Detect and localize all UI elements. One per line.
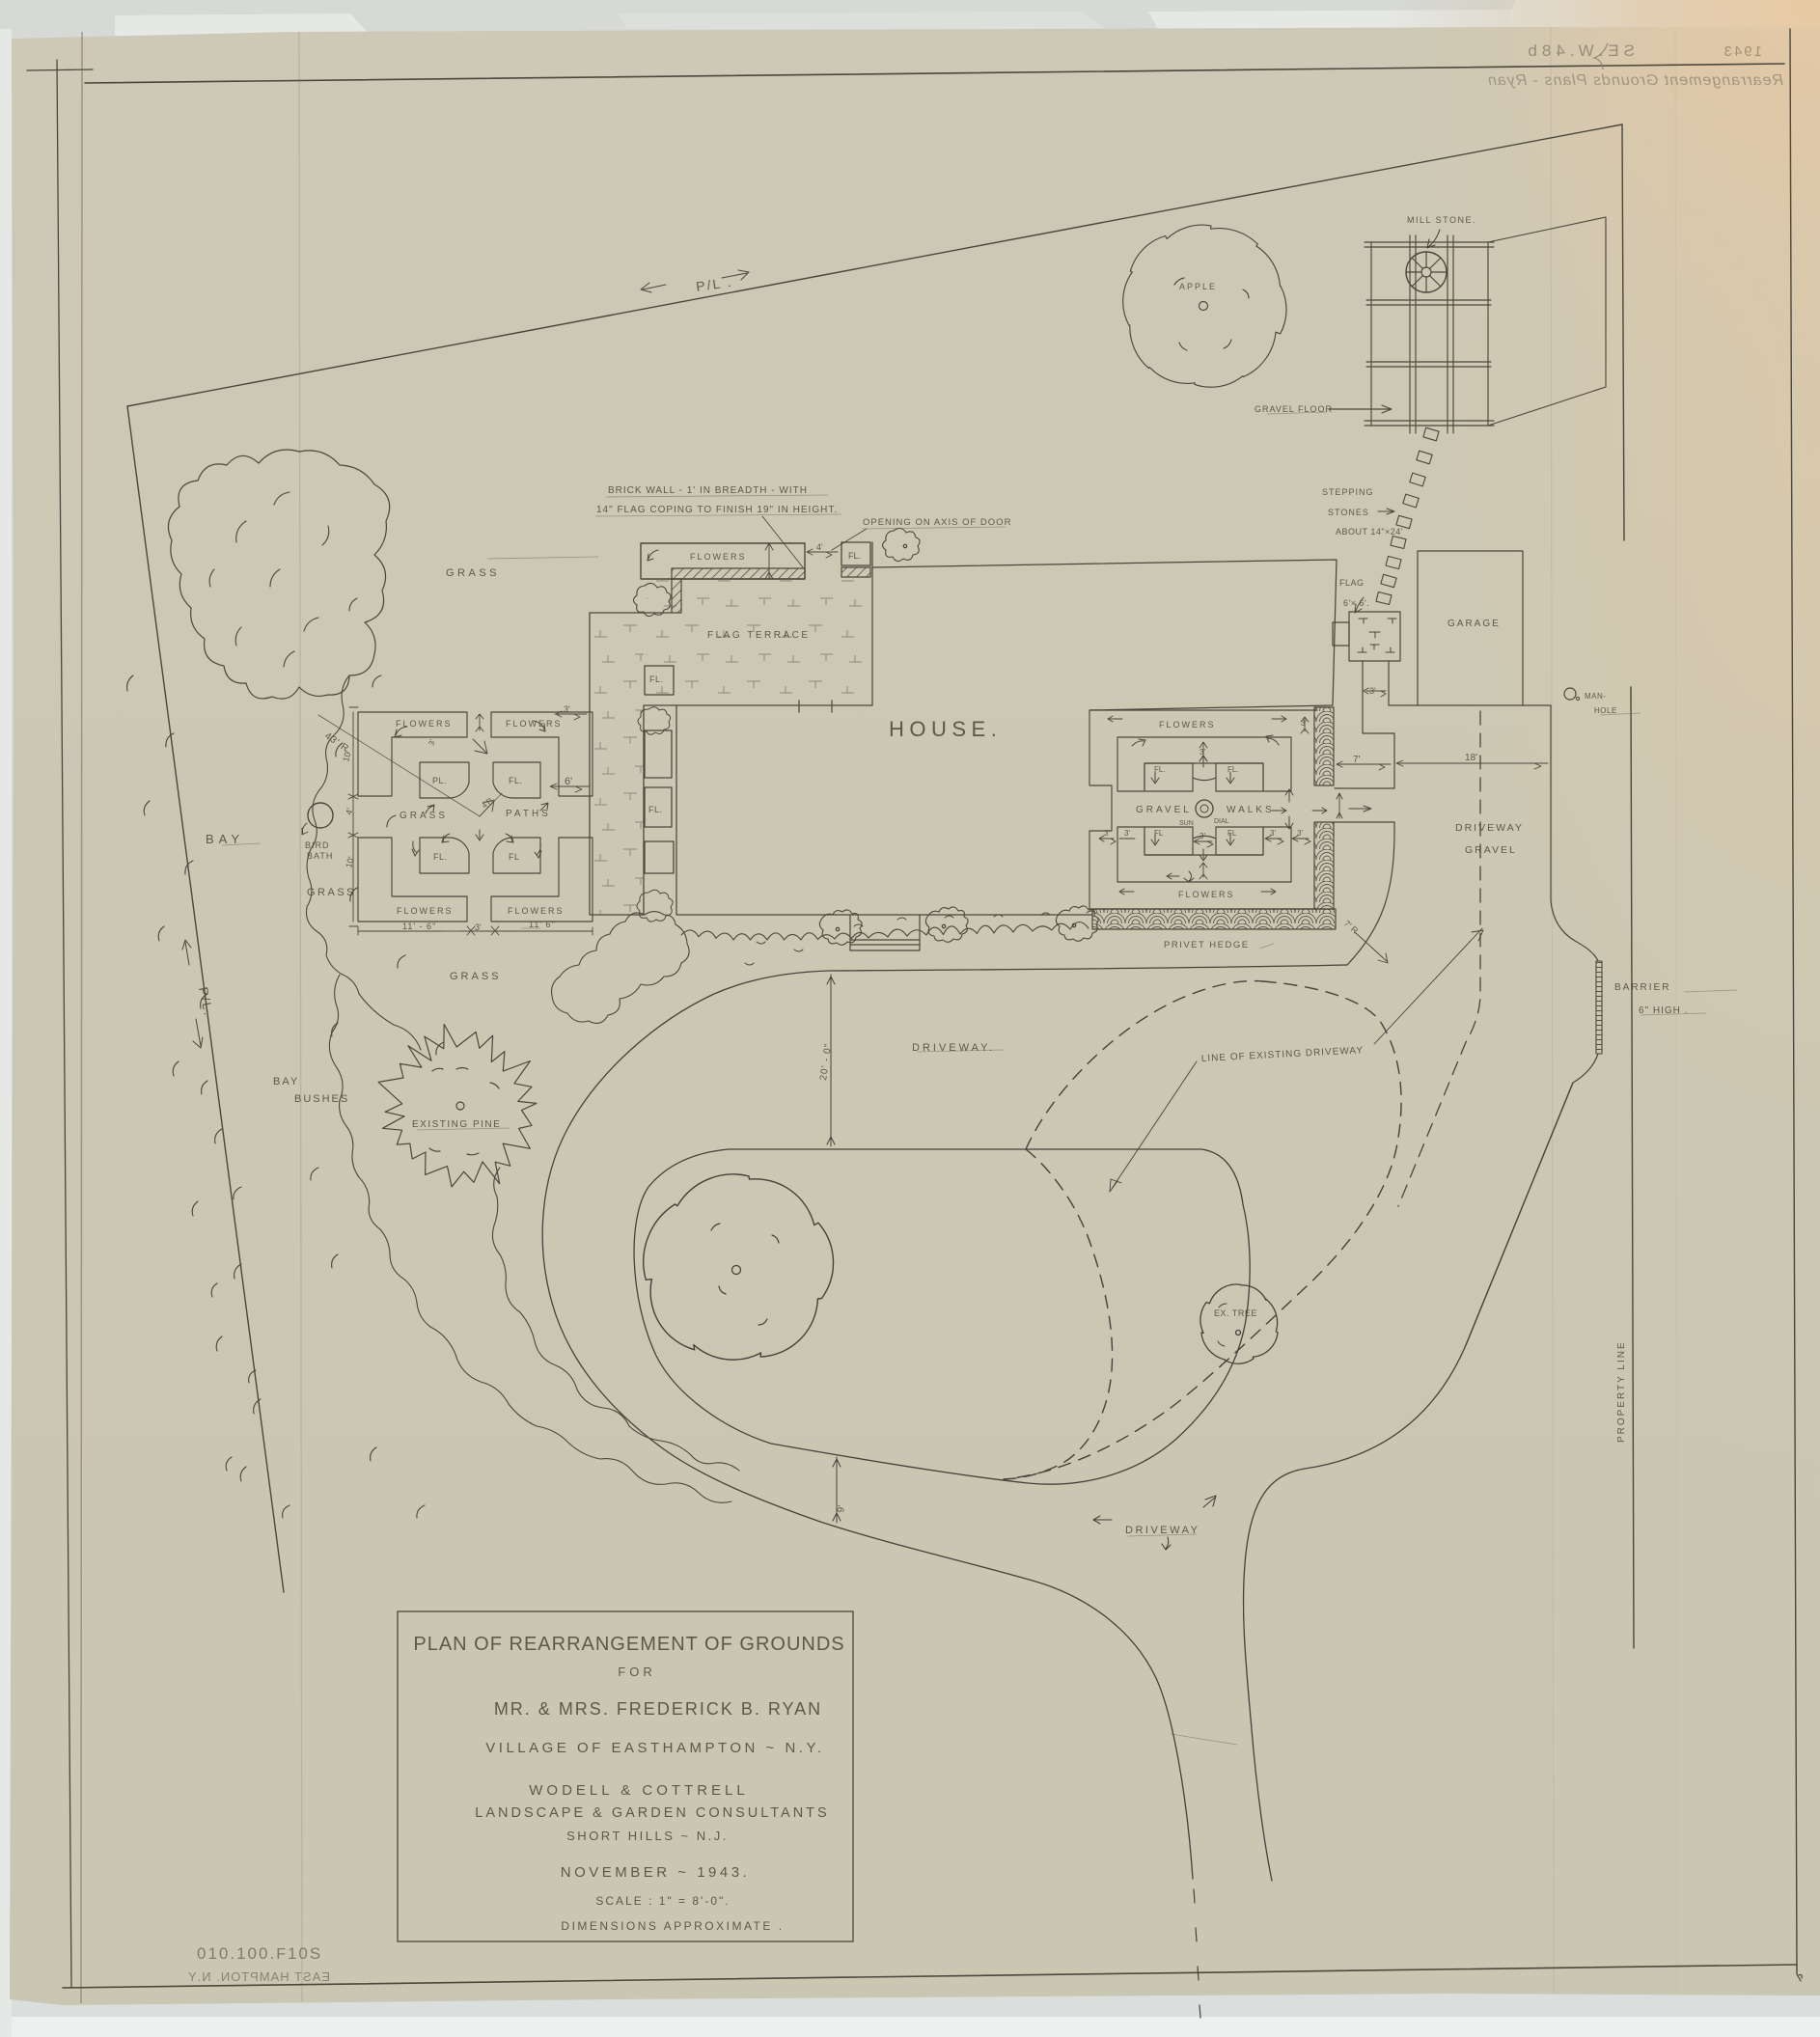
svg-text:3': 3' — [1104, 829, 1110, 838]
svg-text:BIRD: BIRD — [305, 840, 330, 850]
svg-text:FLAG: FLAG — [1339, 578, 1365, 588]
svg-text:APPLE: APPLE — [1179, 282, 1217, 291]
svg-text:GRAVEL: GRAVEL — [1136, 805, 1192, 815]
svg-text:7': 7' — [1353, 755, 1361, 765]
svg-text:SHORT HILLS ~ N.J.: SHORT HILLS ~ N.J. — [566, 1829, 729, 1843]
svg-text:3': 3' — [564, 704, 570, 714]
svg-text:BRICK WALL - 1' IN BREADTH -: BRICK WALL - 1' IN BREADTH - WITH — [608, 485, 808, 496]
svg-text:FLOWERS: FLOWERS — [1159, 720, 1216, 729]
svg-text:11' - 6": 11' - 6" — [402, 922, 436, 931]
svg-text:14" FLAG COPING TO FINISH 19: 14" FLAG COPING TO FINISH 19" IN HEIGHT. — [596, 505, 838, 515]
svg-text:BAY: BAY — [206, 832, 244, 846]
svg-text:FLOWERS: FLOWERS — [1178, 890, 1235, 899]
svg-text:OPENING ON AXIS OF DOOR: OPENING ON AXIS OF DOOR — [863, 517, 1011, 528]
svg-text:GRASS: GRASS — [307, 887, 356, 898]
svg-text:DIMENSIONS APPROXIMATE .: DIMENSIONS APPROXIMATE . — [561, 1919, 784, 1933]
svg-text:SUN: SUN — [1179, 820, 1194, 827]
svg-text:1943: 1943 — [1723, 43, 1762, 60]
svg-text:STEPPING: STEPPING — [1322, 487, 1374, 497]
svg-text:GRAVEL: GRAVEL — [1465, 844, 1517, 856]
svg-text:6': 6' — [565, 776, 572, 787]
svg-text:WALKS: WALKS — [1227, 805, 1275, 815]
svg-text:FLOWERS: FLOWERS — [508, 906, 565, 916]
svg-text:BAY: BAY — [273, 1076, 299, 1087]
svg-text:FL.: FL. — [1154, 765, 1166, 774]
svg-text:3': 3' — [1124, 829, 1130, 838]
svg-text:FL: FL — [509, 852, 520, 862]
svg-text:HOUSE.: HOUSE. — [889, 717, 1002, 741]
svg-text:DRIVEWAY: DRIVEWAY — [1455, 822, 1524, 834]
svg-text:010.100.F10S: 010.100.F10S — [197, 1944, 322, 1963]
svg-text:FL.: FL. — [1227, 765, 1239, 774]
svg-text:3': 3' — [1270, 829, 1276, 838]
svg-text:GARAGE: GARAGE — [1448, 619, 1501, 629]
svg-text:PLAN OF REARRANGEMENT OF GROUN: PLAN OF REARRANGEMENT OF GROUNDS — [413, 1634, 844, 1655]
svg-text:GRASS: GRASS — [446, 567, 500, 579]
svg-text:EAST HAMPTON. N.Y: EAST HAMPTON. N.Y — [187, 1969, 330, 1984]
svg-text:MILL STONE.: MILL STONE. — [1407, 215, 1476, 225]
svg-text:ABOUT 14"×24': ABOUT 14"×24' — [1336, 527, 1403, 537]
svg-text:SCALE : 1" = 8'-0".: SCALE : 1" = 8'-0". — [595, 1894, 730, 1908]
svg-text:SE.W.48b: SE.W.48b — [1523, 41, 1635, 60]
svg-text:DIAL: DIAL — [1214, 818, 1229, 825]
svg-text:FLOWERS: FLOWERS — [396, 719, 453, 729]
svg-text:BARRIER: BARRIER — [1614, 982, 1670, 993]
svg-text:3': 3' — [475, 922, 482, 932]
svg-text:FL.: FL. — [648, 805, 663, 814]
svg-text:6'× 6'.: 6'× 6'. — [1343, 598, 1369, 608]
svg-text:FL: FL — [1227, 829, 1237, 838]
svg-text:18': 18' — [1465, 753, 1477, 763]
svg-text:GRASS: GRASS — [400, 811, 448, 821]
svg-text:PL.: PL. — [432, 776, 447, 785]
svg-text:HOLE: HOLE — [1594, 706, 1617, 715]
svg-text:3': 3' — [1200, 832, 1205, 840]
svg-text:FL: FL — [1154, 829, 1164, 838]
svg-text:GRASS: GRASS — [450, 971, 502, 982]
svg-text:STONES: STONES — [1328, 508, 1369, 517]
svg-text:FLOWERS: FLOWERS — [397, 906, 454, 916]
svg-text:BUSHES: BUSHES — [294, 1093, 349, 1105]
svg-text:PATHS: PATHS — [506, 809, 551, 819]
svg-text:FOR: FOR — [618, 1665, 655, 1679]
svg-text:EX. TREE: EX. TREE — [1214, 1308, 1257, 1318]
svg-text:FL.: FL. — [509, 776, 523, 785]
svg-text:DRIVEWAY.: DRIVEWAY. — [912, 1042, 995, 1054]
svg-text:3': 3' — [1200, 748, 1205, 757]
svg-text:FL.: FL. — [848, 551, 861, 561]
svg-text:GRAVEL FLOOR: GRAVEL FLOOR — [1255, 404, 1333, 414]
svg-text:MR. & MRS. FREDERICK B. RYAN: MR. & MRS. FREDERICK B. RYAN — [494, 1699, 822, 1719]
svg-text:BATH: BATH — [307, 851, 333, 861]
svg-text:WODELL & COTTRELL: WODELL & COTTRELL — [529, 1782, 748, 1799]
svg-text:VILLAGE OF EASTHAMPTON ~ N.Y: VILLAGE OF EASTHAMPTON ~ N.Y. — [485, 1740, 824, 1756]
svg-text:FLAG TERRACE: FLAG TERRACE — [707, 630, 811, 641]
svg-text:PRIVET HEDGE: PRIVET HEDGE — [1164, 940, 1250, 950]
svg-text:6" HIGH .: 6" HIGH . — [1639, 1005, 1688, 1016]
svg-text:4': 4' — [816, 542, 823, 552]
svg-text:11' 6": 11' 6" — [529, 920, 556, 929]
svg-text:PROPERTY LINE: PROPERTY LINE — [1616, 1340, 1627, 1443]
svg-text:FLOWERS: FLOWERS — [690, 552, 747, 562]
svg-text:EXISTING PINE: EXISTING PINE — [412, 1119, 501, 1130]
svg-text:FLOWERS: FLOWERS — [506, 719, 563, 729]
svg-text:FL.: FL. — [649, 674, 664, 684]
svg-text:3': 3' — [1301, 719, 1307, 728]
svg-text:3': 3' — [1297, 829, 1303, 838]
svg-text:MAN-: MAN- — [1585, 692, 1606, 701]
svg-text:LANDSCAPE & GARDEN CONSULTANTS: LANDSCAPE & GARDEN CONSULTANTS — [475, 1805, 829, 1821]
svg-text:FL.: FL. — [433, 852, 448, 862]
svg-text:3': 3' — [1369, 686, 1376, 696]
svg-text:NOVEMBER ~ 1943.: NOVEMBER ~ 1943. — [561, 1864, 750, 1881]
svg-text:Rearrangement Grounds Plans -: Rearrangement Grounds Plans - Ryan — [1487, 72, 1783, 89]
svg-text:DRIVEWAY: DRIVEWAY — [1125, 1525, 1200, 1536]
